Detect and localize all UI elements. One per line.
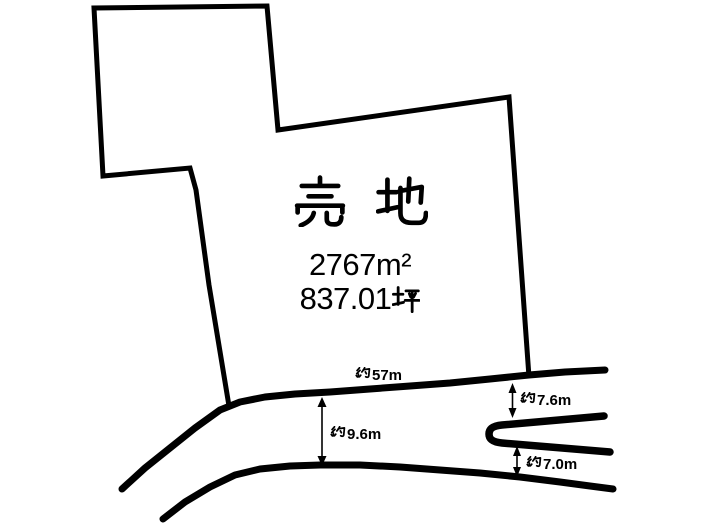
kanji-tsubo-icon: [392, 285, 420, 313]
side-road-upper-width-label: 7.6m: [520, 392, 571, 408]
width-arrow-7-6m: [509, 383, 517, 418]
frontage-label: 57m: [355, 367, 402, 383]
side-road-lower-width-value: 7.0m: [543, 457, 577, 472]
kanji-approx-icon: [520, 392, 536, 408]
area-tsubo-text: 837.01: [280, 283, 440, 314]
width-arrow-7-0m: [513, 446, 521, 477]
front-road-lower-edge: [163, 465, 613, 519]
area-sqm-text: 2767m²: [280, 249, 440, 280]
width-arrow-9-6m: [318, 397, 327, 466]
kanji-approx-icon: [526, 456, 542, 472]
side-road-upper-width-value: 7.6m: [537, 393, 571, 408]
kanji-sale-icon: [294, 175, 346, 227]
kanji-approx-icon: [330, 426, 346, 442]
front-road-width-value: 9.6m: [347, 427, 381, 442]
land-plot-diagram: 2767m² 837.01 57m 9.6m 7.6m 7.0m: [0, 0, 705, 525]
area-tsubo-value: 837.01: [300, 283, 392, 314]
sale-title: [294, 175, 428, 227]
frontage-value: 57m: [372, 368, 402, 383]
kanji-land-icon: [376, 175, 428, 227]
front-road-width-label: 9.6m: [330, 426, 381, 442]
kanji-approx-icon: [355, 367, 371, 383]
side-road-outline: [489, 416, 610, 452]
side-road-lower-width-label: 7.0m: [526, 456, 577, 472]
